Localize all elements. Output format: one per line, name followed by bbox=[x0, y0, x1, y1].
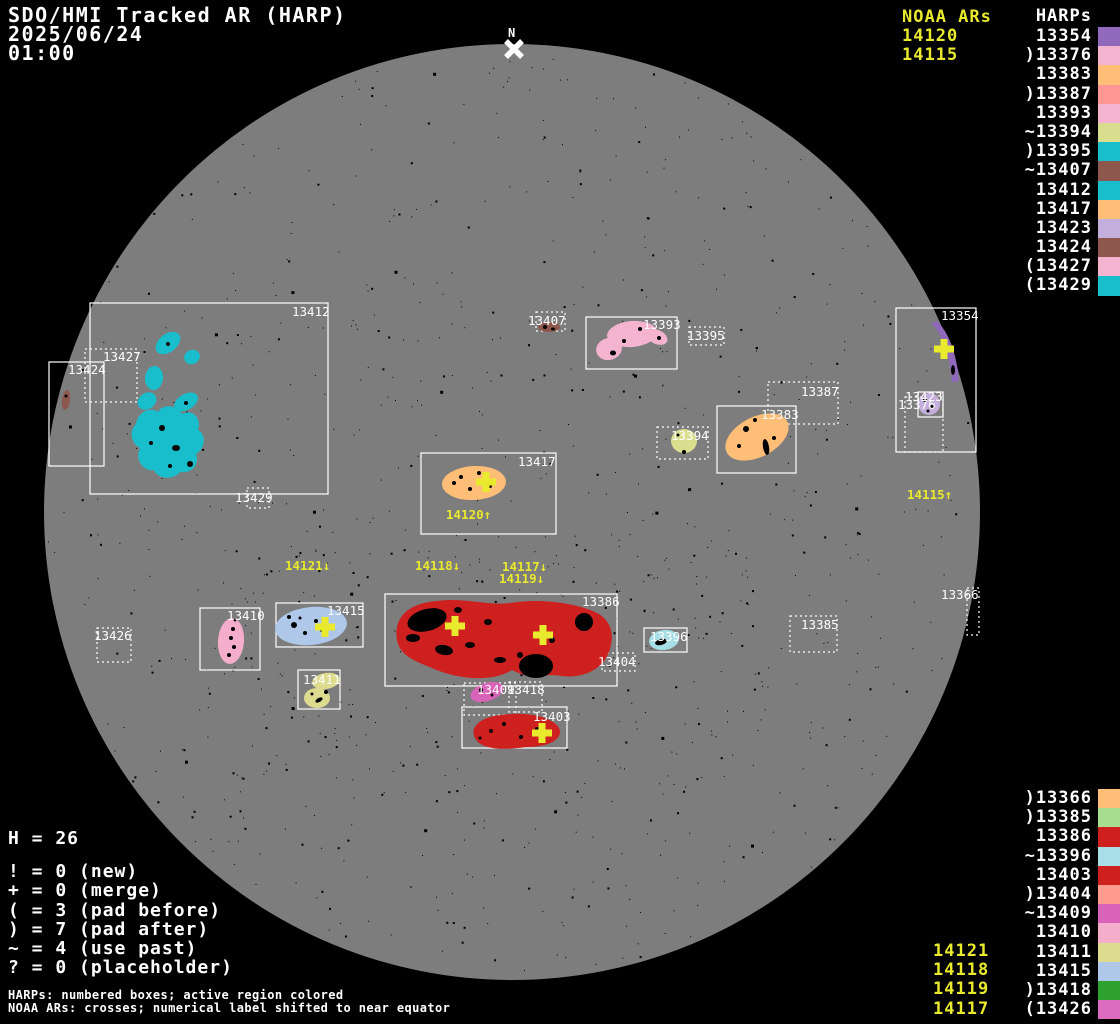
harp-box-label-13412: 13412 bbox=[292, 304, 330, 319]
harp-box-label-13426: 13426 bbox=[94, 628, 132, 643]
region-umbra bbox=[65, 395, 68, 398]
region-umbra bbox=[166, 342, 170, 346]
noaa-disk-label: 14121↓ bbox=[285, 558, 330, 573]
harp-color-swatch bbox=[1098, 276, 1120, 295]
harp-color-swatch bbox=[1098, 200, 1120, 219]
region-umbra bbox=[149, 441, 153, 445]
harp-list-item-13354: 13354 bbox=[880, 27, 1120, 46]
region-umbra bbox=[287, 615, 291, 619]
region-umbra bbox=[172, 445, 180, 451]
harp-color-swatch bbox=[1098, 1000, 1120, 1019]
harp-list-item-13411: 13411 bbox=[880, 943, 1120, 962]
harp-count: H = 26 bbox=[8, 828, 79, 849]
harps-list-bottom: )13366)1338513386~1339613403)13404~13409… bbox=[880, 789, 1120, 1019]
region-umbra bbox=[231, 627, 235, 631]
harp-color-swatch bbox=[1098, 238, 1120, 257]
harp-list-item-13383: 13383 bbox=[880, 65, 1120, 84]
harp-color-swatch bbox=[1098, 789, 1120, 808]
region-umbra bbox=[737, 444, 741, 448]
noaa-ars-list-bottom: 14121141181411914117 bbox=[933, 942, 989, 1019]
region-umbra bbox=[638, 327, 642, 331]
region-umbra bbox=[454, 607, 462, 613]
region-umbra bbox=[484, 619, 492, 625]
harp-list-item-13396: ~13396 bbox=[880, 847, 1120, 866]
harp-list-item-13394: ~13394 bbox=[880, 123, 1120, 142]
harp-box-label-13404: 13404 bbox=[598, 654, 636, 669]
harp-number-label: 13386 bbox=[1036, 827, 1092, 846]
region-umbra bbox=[291, 622, 297, 628]
harp-list-item-13410: 13410 bbox=[880, 923, 1120, 942]
harp-list-item-13418: )13418 bbox=[880, 981, 1120, 1000]
region-umbra bbox=[229, 636, 233, 640]
region-umbra bbox=[159, 425, 165, 431]
region-umbra bbox=[452, 481, 456, 485]
harp-color-swatch bbox=[1098, 27, 1120, 46]
harp-color-swatch bbox=[1098, 46, 1120, 65]
region-umbra bbox=[494, 657, 506, 663]
harp-color-swatch bbox=[1098, 981, 1120, 1000]
region-umbra bbox=[406, 634, 420, 642]
harp-map-screenshot: 1341213424134271342913407133931339513387… bbox=[0, 0, 1120, 1024]
harp-box-label-13407: 13407 bbox=[528, 313, 566, 328]
legend-line: ! = 0 (new) bbox=[8, 862, 233, 881]
harp-color-swatch bbox=[1098, 142, 1120, 161]
harp-number-label: ~13409 bbox=[1025, 904, 1092, 923]
harp-color-swatch bbox=[1098, 904, 1120, 923]
region-umbra bbox=[517, 652, 523, 658]
legend-line: ~ = 4 (use past) bbox=[8, 939, 233, 958]
north-marker: N bbox=[506, 26, 522, 57]
harp-number-label: )13395 bbox=[1025, 142, 1092, 161]
harp-list-item-13403: 13403 bbox=[880, 866, 1120, 885]
harp-color-swatch bbox=[1098, 962, 1120, 981]
region-umbra bbox=[477, 471, 481, 475]
harp-color-swatch bbox=[1098, 104, 1120, 123]
harp-list-item-13415: 13415 bbox=[880, 962, 1120, 981]
region-umbra bbox=[753, 418, 757, 422]
harp-box-label-13366: 13366 bbox=[941, 587, 979, 602]
region-umbra bbox=[187, 461, 193, 467]
harp-box-label-13415: 13415 bbox=[327, 603, 365, 618]
harp-color-swatch bbox=[1098, 85, 1120, 104]
harp-list-item-13407: ~13407 bbox=[880, 161, 1120, 180]
harp-color-swatch bbox=[1098, 808, 1120, 827]
harp-number-label: 13423 bbox=[1036, 219, 1092, 238]
harp-color-swatch bbox=[1098, 219, 1120, 238]
harp-box-label-13411: 13411 bbox=[303, 672, 341, 687]
harp-number-label: 13411 bbox=[1036, 943, 1092, 962]
noaa-disk-label: 14115↑ bbox=[907, 487, 952, 502]
harp-color-swatch bbox=[1098, 123, 1120, 142]
noaa-ar-number: 14119 bbox=[933, 980, 989, 999]
harp-list-item-13417: 13417 bbox=[880, 200, 1120, 219]
harp-color-swatch bbox=[1098, 885, 1120, 904]
region-umbra bbox=[311, 693, 314, 696]
harp-box-label-13417: 13417 bbox=[518, 454, 556, 469]
harp-number-label: 13424 bbox=[1036, 238, 1092, 257]
region-umbra bbox=[184, 401, 188, 405]
harp-list-item-13386: 13386 bbox=[880, 827, 1120, 846]
harp-list-item-13424: 13424 bbox=[880, 238, 1120, 257]
harp-box-label-13387: 13387 bbox=[801, 384, 839, 399]
active-region-13386 bbox=[396, 600, 611, 678]
harp-box-label-13385: 13385 bbox=[801, 617, 839, 632]
region-umbra bbox=[610, 351, 616, 356]
harp-color-swatch bbox=[1098, 866, 1120, 885]
harp-list-item-13409: ~13409 bbox=[880, 904, 1120, 923]
north-label: N bbox=[508, 26, 515, 40]
footnotes: HARPs: numbered boxes; active region col… bbox=[8, 989, 450, 1014]
region-umbra bbox=[232, 645, 236, 649]
harp-number-label: 13410 bbox=[1036, 923, 1092, 942]
noaa-ar-number: 14118 bbox=[933, 961, 989, 980]
harp-color-swatch bbox=[1098, 827, 1120, 846]
harp-number-label: (13426 bbox=[1025, 1000, 1092, 1019]
harp-list-item-13387: )13387 bbox=[880, 85, 1120, 104]
harp-number-label: 13393 bbox=[1036, 104, 1092, 123]
harp-number-label: )13376 bbox=[1025, 46, 1092, 65]
harp-number-label: )13404 bbox=[1025, 885, 1092, 904]
harp-list-item-13376: )13376 bbox=[880, 46, 1120, 65]
region-umbra bbox=[772, 436, 776, 440]
region-umbra bbox=[489, 729, 493, 733]
title-block: SDO/HMI Tracked AR (HARP)2025/06/2401:00 bbox=[8, 6, 347, 63]
region-umbra bbox=[324, 690, 328, 694]
harp-number-label: (13427 bbox=[1025, 257, 1092, 276]
region-umbra bbox=[227, 653, 231, 657]
harp-color-swatch bbox=[1098, 257, 1120, 276]
harp-list-item-13426: (13426 bbox=[880, 1000, 1120, 1019]
harp-box-label-13395: 13395 bbox=[687, 328, 725, 343]
noaa-ar-number: 14117 bbox=[933, 1000, 989, 1019]
harp-list-item-13427: (13427 bbox=[880, 257, 1120, 276]
harp-box-label-13424: 13424 bbox=[68, 362, 106, 377]
region-umbra bbox=[622, 339, 626, 343]
harp-list-item-13393: 13393 bbox=[880, 104, 1120, 123]
region-umbra bbox=[468, 487, 472, 491]
harp-number-label: )13387 bbox=[1025, 85, 1092, 104]
harp-number-label: 13415 bbox=[1036, 962, 1092, 981]
legend-line: ( = 3 (pad before) bbox=[8, 901, 233, 920]
region-umbra bbox=[459, 475, 463, 479]
footnote-noaa: NOAA ARs: crosses; numerical label shift… bbox=[8, 1001, 450, 1015]
region-umbra bbox=[314, 619, 318, 623]
harp-number-label: 13417 bbox=[1036, 200, 1092, 219]
harp-box-label-13423: 13423 bbox=[905, 389, 943, 404]
region-umbra bbox=[743, 426, 749, 432]
legend-line: ) = 7 (pad after) bbox=[8, 920, 233, 939]
harp-color-swatch bbox=[1098, 847, 1120, 866]
harp-color-swatch bbox=[1098, 161, 1120, 180]
harp-color-swatch bbox=[1098, 943, 1120, 962]
harp-list-item-13395: )13395 bbox=[880, 142, 1120, 161]
region-umbra bbox=[465, 642, 475, 648]
region-umbra bbox=[519, 735, 523, 739]
noaa-ar-number: 14121 bbox=[933, 942, 989, 961]
harp-box-label-13393: 13393 bbox=[643, 317, 681, 332]
legend-line: ? = 0 (placeholder) bbox=[8, 958, 233, 977]
harp-list-item-13423: 13423 bbox=[880, 219, 1120, 238]
time-label: 01:00 bbox=[8, 41, 76, 65]
region-umbra bbox=[299, 617, 302, 620]
harp-box-label-13427: 13427 bbox=[103, 349, 141, 364]
harp-list-item-13429: (13429 bbox=[880, 276, 1120, 295]
harp-number-label: ~13396 bbox=[1025, 847, 1092, 866]
solar-disk bbox=[44, 44, 980, 980]
harp-color-swatch bbox=[1098, 65, 1120, 84]
noaa-disk-label: 14119↓ bbox=[499, 571, 544, 586]
harp-box-label-13396: 13396 bbox=[650, 629, 688, 644]
harp-color-swatch bbox=[1098, 923, 1120, 942]
harp-box-label-13354: 13354 bbox=[941, 308, 979, 323]
region-umbra bbox=[502, 722, 506, 726]
harp-number-label: ~13394 bbox=[1025, 123, 1092, 142]
harp-box-label-13394: 13394 bbox=[671, 428, 709, 443]
region-umbra bbox=[951, 365, 955, 375]
harp-list-item-13404: )13404 bbox=[880, 885, 1120, 904]
harp-number-label: 13383 bbox=[1036, 65, 1092, 84]
harp-list-item-13366: )13366 bbox=[880, 789, 1120, 808]
harp-box-label-13410: 13410 bbox=[227, 608, 265, 623]
symbol-legend: ! = 0 (new)+ = 0 (merge)( = 3 (pad befor… bbox=[8, 862, 233, 978]
noaa-disk-label: 14120↑ bbox=[446, 507, 491, 522]
region-umbra bbox=[479, 737, 482, 740]
harp-number-label: )13418 bbox=[1025, 981, 1092, 1000]
harp-list-item-13412: 13412 bbox=[880, 181, 1120, 200]
harp-number-label: (13429 bbox=[1025, 276, 1092, 295]
region-umbra bbox=[168, 464, 172, 468]
region-umbra bbox=[519, 654, 553, 678]
harp-list-item-13385: )13385 bbox=[880, 808, 1120, 827]
harp-color-swatch bbox=[1098, 181, 1120, 200]
harp-box-label-13429: 13429 bbox=[235, 490, 273, 505]
harp-box-label-13403: 13403 bbox=[533, 709, 571, 724]
harp-number-label: )13385 bbox=[1025, 808, 1092, 827]
region-umbra bbox=[575, 613, 593, 631]
noaa-disk-label: 14118↓ bbox=[415, 558, 460, 573]
harp-box-label-13418: 13418 bbox=[507, 682, 545, 697]
harp-number-label: 13412 bbox=[1036, 181, 1092, 200]
region-umbra bbox=[682, 450, 686, 454]
harp-box-label-13386: 13386 bbox=[582, 594, 620, 609]
harp-box-label-13383: 13383 bbox=[761, 407, 799, 422]
legend-line: + = 0 (merge) bbox=[8, 881, 233, 900]
harp-number-label: ~13407 bbox=[1025, 161, 1092, 180]
harps-list-top: HARPs 13354)1337613383)1338713393~13394)… bbox=[880, 6, 1120, 296]
harps-header: HARPs bbox=[880, 6, 1120, 27]
region-umbra bbox=[303, 631, 307, 635]
harp-number-label: )13366 bbox=[1025, 789, 1092, 808]
harp-number-label: 13403 bbox=[1036, 866, 1092, 885]
harp-number-label: 13354 bbox=[1036, 27, 1092, 46]
region-umbra bbox=[657, 336, 661, 340]
